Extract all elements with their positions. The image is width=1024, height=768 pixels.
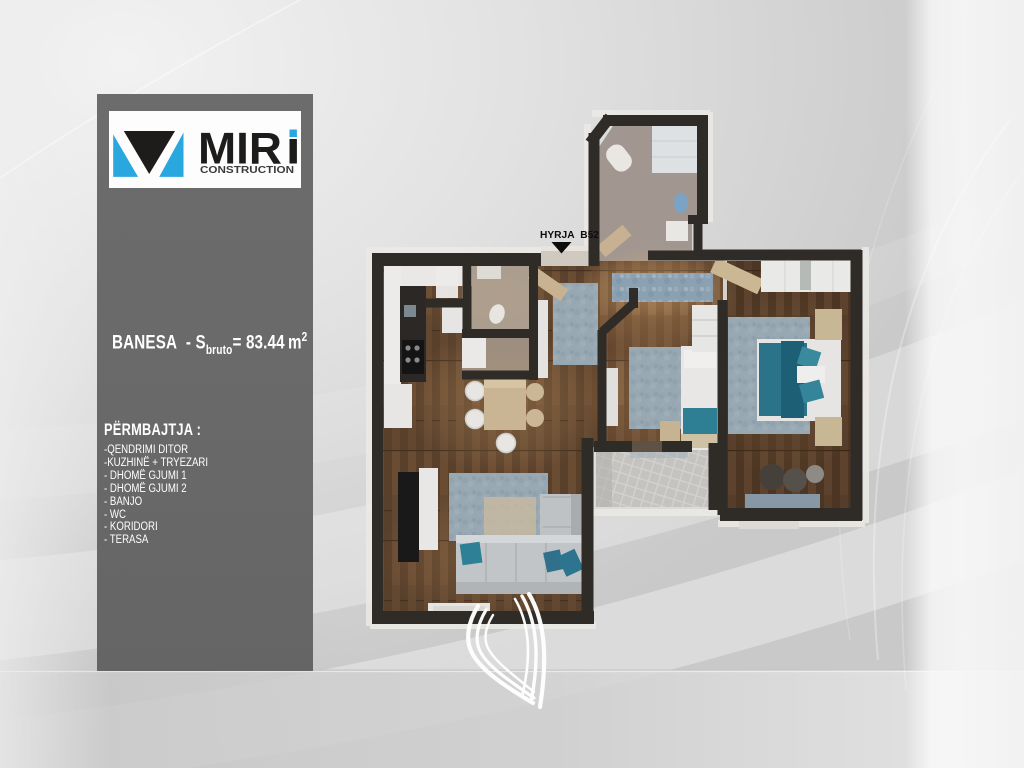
svg-text:HYRJA B52: HYRJA B52	[540, 229, 599, 241]
